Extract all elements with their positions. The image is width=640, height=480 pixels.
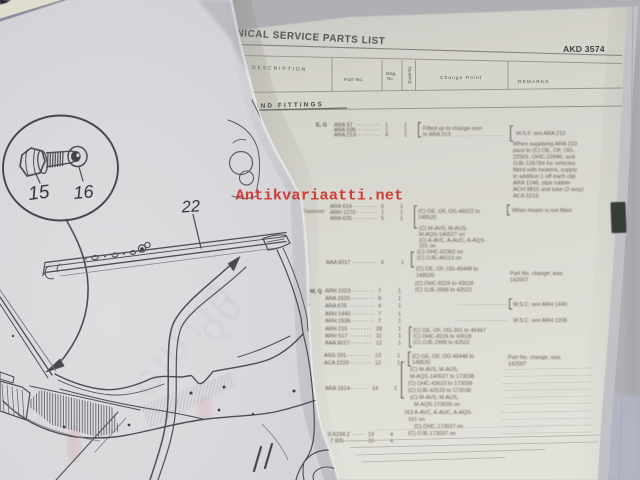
svg-text:1: 1 bbox=[397, 361, 400, 367]
svg-text:4: 4 bbox=[378, 304, 381, 310]
svg-text:1: 1 bbox=[398, 304, 401, 310]
svg-text:4: 4 bbox=[385, 133, 388, 139]
svg-text:When supplying ARA 213: When supplying ARA 213 bbox=[513, 142, 577, 148]
svg-text:ARH 1536: ARH 1536 bbox=[325, 319, 350, 325]
svg-text:When heater is not fitted: When heater is not fitted bbox=[512, 208, 572, 214]
svg-text:5: 5 bbox=[381, 216, 384, 222]
svg-text:Part No.: Part No. bbox=[344, 77, 364, 83]
svg-text:7: 7 bbox=[378, 289, 381, 295]
svg-text:(C) OHC-8224 to 43618: (C) OHC-8224 to 43618 bbox=[415, 281, 473, 287]
svg-text:Change Point: Change Point bbox=[440, 75, 482, 81]
svg-text:10: 10 bbox=[368, 439, 374, 445]
svg-text:ARA 1520: ARA 1520 bbox=[325, 296, 350, 302]
svg-text:15: 15 bbox=[27, 181, 51, 204]
svg-text:4: 4 bbox=[390, 432, 393, 438]
svg-text:163 A-AVC, A-AUC, A-AQS-: 163 A-AVC, A-AUC, A-AQS- bbox=[404, 410, 473, 416]
svg-text:ARA 1614: ARA 1614 bbox=[325, 386, 350, 392]
svg-text:12: 12 bbox=[376, 341, 382, 347]
svg-text:(C) OJE-173037 on: (C) OJE-173037 on bbox=[408, 431, 456, 437]
svg-text:W.S.C. see ARH 1206: W.S.C. see ARH 1206 bbox=[513, 318, 567, 324]
svg-text:ARH 215: ARH 215 bbox=[325, 327, 347, 333]
svg-text:to ARA 213: to ARA 213 bbox=[423, 132, 451, 138]
svg-text:1: 1 bbox=[397, 353, 400, 359]
svg-text:Antikvariaatti.net: Antikvariaatti.net bbox=[236, 187, 404, 205]
svg-text:Part No. change; was: Part No. change; was bbox=[508, 355, 561, 361]
svg-text:148520: 148520 bbox=[412, 360, 430, 366]
svg-text:ARA 1246, pipe rubber: ARA 1246, pipe rubber bbox=[513, 181, 571, 187]
svg-text:AAA 6017: AAA 6017 bbox=[326, 260, 350, 266]
svg-text:6: 6 bbox=[381, 260, 384, 266]
svg-text:1: 1 bbox=[398, 296, 401, 302]
svg-text:1: 1 bbox=[404, 133, 407, 139]
svg-text:ACA 2220: ACA 2220 bbox=[324, 361, 349, 367]
svg-text:(C) OJE-42533 to 173038: (C) OJE-42533 to 173038 bbox=[408, 388, 471, 394]
svg-text:13: 13 bbox=[368, 432, 374, 438]
svg-text:1: 1 bbox=[398, 334, 401, 340]
svg-text:ARA 625: ARA 625 bbox=[330, 216, 352, 222]
svg-text:(C) OE, OF, OG-45448 to: (C) OE, OF, OG-45448 to bbox=[416, 267, 478, 273]
svg-text:Part No. change; was: Part No. change; was bbox=[510, 271, 563, 277]
svg-text:13: 13 bbox=[375, 353, 381, 359]
svg-text:7: 7 bbox=[378, 312, 381, 318]
svg-text:142007: 142007 bbox=[508, 362, 526, 368]
svg-text:fitted with heaters, supply: fitted with heaters, supply bbox=[513, 168, 577, 174]
svg-text:1: 1 bbox=[398, 327, 401, 333]
svg-text:M-AQS-173039 on: M-AQS-173039 on bbox=[414, 402, 460, 408]
svg-text:1: 1 bbox=[394, 386, 397, 392]
svg-text:ARA 213: ARA 213 bbox=[334, 133, 356, 139]
svg-text:1: 1 bbox=[398, 319, 401, 325]
svg-text:ARA 676: ARA 676 bbox=[325, 304, 347, 310]
svg-text:AAA 6017: AAA 6017 bbox=[325, 341, 349, 347]
svg-text:para to (C) OE, OF, OG-: para to (C) OE, OF, OG- bbox=[513, 148, 574, 154]
svg-text:ACA 5215: ACA 5215 bbox=[513, 194, 539, 200]
svg-text:(C) M-AVS, M-AUS,: (C) M-AVS, M-AUS, bbox=[410, 367, 459, 373]
svg-text:(C) M-AVS, M-AUS,: (C) M-AVS, M-AUS, bbox=[410, 395, 459, 401]
svg-text:Quantity: Quantity bbox=[407, 65, 412, 84]
svg-text:16: 16 bbox=[73, 181, 96, 203]
svg-text:148520: 148520 bbox=[418, 215, 436, 221]
svg-text:12: 12 bbox=[375, 361, 381, 367]
svg-text:M-AQS-140527 to 173038: M-AQS-140527 to 173038 bbox=[410, 374, 474, 380]
svg-text:1: 1 bbox=[398, 341, 401, 347]
svg-text:1: 1 bbox=[400, 216, 403, 222]
svg-text:No.: No. bbox=[387, 76, 394, 81]
svg-text:161 on: 161 on bbox=[408, 417, 425, 423]
svg-text:8: 8 bbox=[378, 296, 381, 302]
svg-text:(C) OJE-2998 to 42522: (C) OJE-2998 to 42522 bbox=[415, 288, 472, 294]
svg-text:(C) OJE-2998 to 42522: (C) OJE-2998 to 42522 bbox=[413, 340, 470, 346]
svg-text:W.S.F. see ARA 213: W.S.F. see ARA 213 bbox=[516, 131, 565, 137]
svg-text:1: 1 bbox=[398, 289, 401, 295]
svg-text:(C) OJE-46013 on: (C) OJE-46013 on bbox=[417, 256, 462, 262]
svg-text:11: 11 bbox=[376, 334, 382, 340]
svg-text:(C) OHC-43610 to 173038: (C) OHC-43610 to 173038 bbox=[408, 381, 473, 387]
svg-text:in addition 1 off each clip: in addition 1 off each clip bbox=[513, 174, 576, 180]
svg-text:1: 1 bbox=[398, 312, 401, 318]
svg-text:7: 7 bbox=[378, 319, 381, 325]
svg-text:E, G: E, G bbox=[316, 123, 327, 129]
svg-text:OJE-126784 for vehicles: OJE-126784 for vehicles bbox=[513, 161, 575, 167]
svg-text:4: 4 bbox=[390, 439, 393, 445]
svg-text:1: 1 bbox=[401, 260, 404, 266]
svg-text:22: 22 bbox=[180, 197, 201, 216]
svg-text:ACH 9815 and tube (2-way): ACH 9815 and tube (2-way) bbox=[513, 187, 584, 193]
svg-text:148520: 148520 bbox=[416, 273, 434, 279]
svg-text:ASG 201: ASG 201 bbox=[324, 353, 346, 359]
svg-text:142007: 142007 bbox=[510, 278, 528, 284]
svg-text:28: 28 bbox=[376, 327, 382, 333]
svg-text:ARH 1440: ARH 1440 bbox=[325, 312, 350, 318]
svg-text:ARH 1022: ARH 1022 bbox=[325, 289, 350, 295]
svg-text:AKD 3574: AKD 3574 bbox=[563, 44, 605, 54]
svg-text:ARH 517: ARH 517 bbox=[325, 334, 347, 340]
svg-text:REMARKS: REMARKS bbox=[518, 79, 549, 85]
svg-text:22501, OHC-23940, and: 22501, OHC-23940, and bbox=[513, 155, 575, 161]
svg-text:W.S.C. see ARH 1440: W.S.C. see ARH 1440 bbox=[513, 302, 567, 308]
svg-text:14: 14 bbox=[372, 386, 378, 392]
